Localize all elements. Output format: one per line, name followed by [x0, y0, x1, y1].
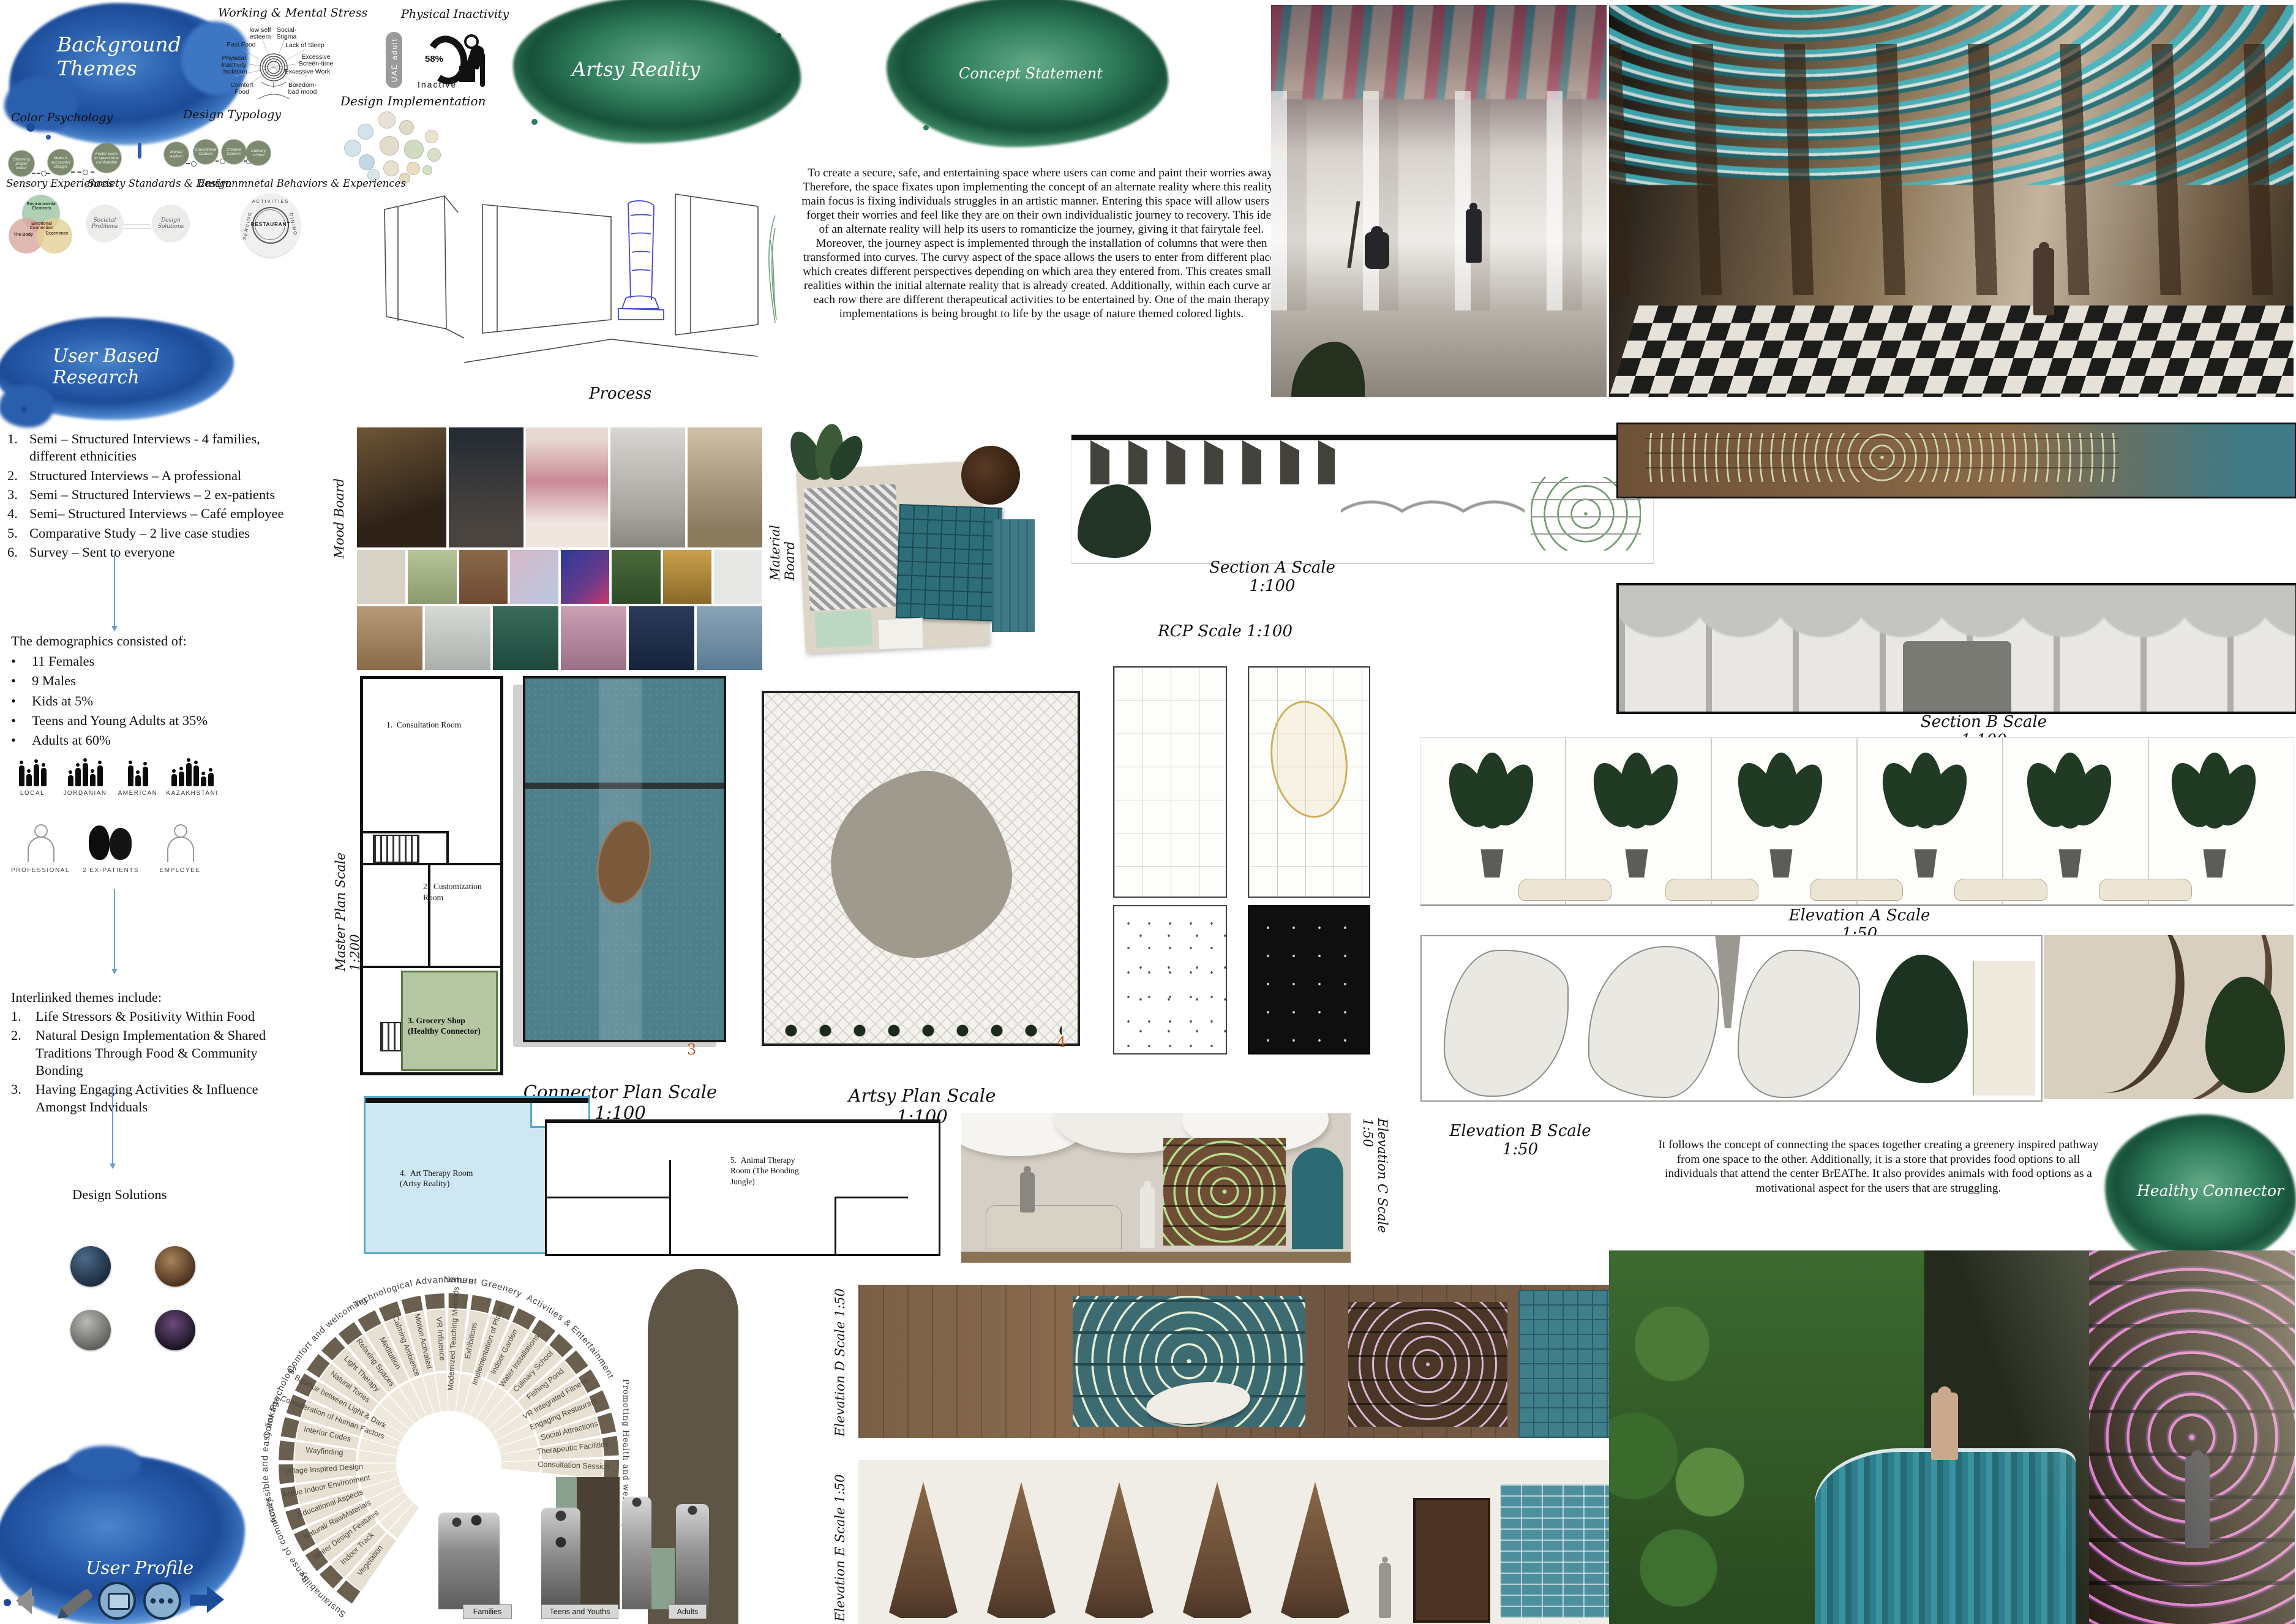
interlinked-number: 3.: [11, 1081, 36, 1116]
venn-top-label: Environmental Elements: [23, 202, 60, 211]
adult-man-photo: [622, 1497, 651, 1609]
step-circle: Make A successful Design: [48, 149, 73, 175]
color-psychology-title: Color Psychology: [11, 111, 113, 124]
animal-therapy-plan: 5. Animal Therapy Room (The Bonding Jung…: [545, 1119, 940, 1256]
user-research-title: User Based Research: [53, 345, 234, 388]
ethnic-group: JORDANIAN: [59, 758, 111, 797]
elevation-a-drawing: [1420, 738, 2294, 906]
step-circle: Mental asylum: [164, 142, 189, 167]
stress-factor-label: ComfortFood: [230, 81, 253, 96]
sensory-venn: Environmental Elements Emotional Connect…: [7, 192, 75, 263]
forward-arrow-icon: [207, 1586, 238, 1613]
role-icon: [23, 824, 58, 862]
demographic-item: •Kids at 5%: [11, 693, 225, 710]
families-photo: [438, 1513, 500, 1609]
interlinked-number: 2.: [11, 1027, 36, 1079]
demographic-item: •11 Females: [11, 653, 225, 670]
mood-tile: [425, 606, 490, 670]
ethnicity-row: LOCALJORDANIANAMERICANKAZAKHSTANI: [10, 758, 216, 807]
mood-board-label: Mood Board: [332, 467, 347, 558]
elevation-c-bottle-wall: [1163, 1138, 1286, 1246]
plant: [1878, 749, 1970, 878]
rcp-small-plan-white: [1113, 905, 1227, 1054]
interlinked-list: 1.Life Stressors & Positivity Within Foo…: [11, 1008, 302, 1116]
research-item: 2.Structured Interviews – A professional: [7, 467, 300, 484]
interlinked-title: Interlinked themes include:: [11, 990, 302, 1006]
mindmap-bubble: [407, 162, 420, 175]
material-mint-chip: [815, 610, 873, 648]
section-b-strip-2: [1616, 583, 2296, 714]
design-solution-photo-4: [155, 1310, 195, 1350]
material-fabric-swatch: [804, 484, 902, 611]
mood-tile: [629, 606, 694, 670]
ethnic-group: LOCAL: [10, 758, 55, 797]
render-art-gallery: [1271, 5, 1607, 397]
elevation-e-label: Elevation E Scale 1:50: [833, 1461, 847, 1622]
artsy-reality-title: Artsy Reality: [572, 58, 700, 81]
connector-knot: [83, 170, 88, 175]
interlinked-number: 1.: [11, 1008, 36, 1025]
mood-tile: [408, 550, 456, 604]
mood-tile: [612, 550, 660, 604]
mood-tile: [688, 427, 762, 547]
person-silhouette-icon: [41, 768, 47, 786]
research-item-number: 5.: [7, 525, 29, 542]
person-silhouette-icon: [208, 773, 214, 786]
mental-stress-title: Working & Mental Stress: [218, 6, 367, 20]
interlinked-item: 3.Having Engaging Activities & Influence…: [11, 1081, 302, 1116]
person-silhouette-icon: [186, 763, 192, 786]
design-solution-photo-2: [155, 1246, 195, 1287]
research-item-text: Semi– Structured Interviews – Café emplo…: [29, 505, 284, 522]
venn-right-label: Experience: [43, 231, 71, 236]
process-label: Process: [589, 385, 651, 403]
mood-tile: [357, 550, 405, 604]
room-consultation: 1. Consultation Room: [386, 720, 490, 731]
elevation-c-teal-arch: [1292, 1148, 1343, 1249]
stress-factor-label: low selfesteem: [249, 26, 271, 40]
interlinked-item: 1.Life Stressors & Positivity Within Foo…: [11, 1008, 302, 1025]
elevation-b-right-piece: [2044, 935, 2294, 1099]
room-animal-therapy: 5. Animal Therapy Room (The Bonding Jung…: [730, 1144, 847, 1187]
section-a-drawing: [1071, 435, 1653, 563]
teens-dark-block: [577, 1477, 620, 1609]
roles-row: PROFESSIONAL2 EX-PATIENTSEMPLOYEE: [10, 824, 212, 885]
societal-problems-node: Societal Problems: [86, 205, 124, 242]
artsy-reality-blob: Artsy Reality: [513, 0, 801, 143]
healthy-connector-paragraph: It follows the concept of connecting the…: [1653, 1138, 2104, 1195]
elevation-b-label: Elevation B Scale 1:50: [1431, 1122, 1609, 1159]
mindmap-bubble: [427, 148, 441, 162]
research-item-text: Comparative Study – 2 live case studies: [29, 525, 250, 542]
mood-tile: [357, 606, 422, 670]
elevation-d-shelf-unit: [1348, 1302, 1507, 1427]
elevation-e-teal-bricks: [1500, 1484, 1623, 1618]
connector-plan: [523, 676, 726, 1042]
demographic-text: Kids at 5%: [32, 693, 93, 710]
design-solution-photo-1: [70, 1246, 111, 1287]
healthy-connector-blob: Healthy Connector: [2105, 1115, 2296, 1269]
interlinked-text: Having Engaging Activities & Influence A…: [36, 1081, 302, 1116]
bullet: •: [11, 653, 32, 670]
research-item: 1.Semi – Structured Interviews - 4 famil…: [7, 430, 300, 465]
sofa: [2099, 879, 2192, 901]
mindmap-bubble: [399, 120, 414, 135]
silhouette-figures: [10, 758, 55, 786]
mood-tile: [510, 550, 558, 604]
bullet: •: [11, 672, 32, 690]
concept-blob: Concept Statement: [887, 0, 1168, 147]
section-a-label: Section A Scale 1:100: [1187, 558, 1358, 595]
mood-tile: [663, 550, 711, 604]
artsy-plan-blob: [814, 756, 1026, 973]
plant: [1734, 749, 1826, 878]
sofa: [1518, 879, 1611, 901]
role-group: 2 EX-PATIENTS: [77, 824, 144, 874]
interlinked-text: Life Stressors & Positivity Within Food: [36, 1008, 255, 1025]
inactive-caption: Inactive: [418, 80, 457, 89]
interlinked-item: 2.Natural Design Implementation & Shared…: [11, 1027, 302, 1079]
section-b-strip-1: [1616, 423, 2296, 498]
page-number-4: 4: [1057, 1034, 1066, 1051]
section-b-bottle-rows: [1645, 433, 2119, 482]
page-number-3: 3: [687, 1041, 696, 1058]
research-item-number: 1.: [7, 430, 29, 465]
elevation-e-render: [858, 1460, 1623, 1624]
mindmap-bubble: [359, 154, 375, 170]
material-plant: [786, 424, 866, 497]
sofa: [1954, 879, 2047, 901]
elevation-c-render: [961, 1113, 1351, 1263]
elevation-d-teal-tiles: [1518, 1290, 1623, 1438]
mindmap-bubble: [358, 124, 373, 140]
room-grocery: 3. Grocery Shop (Healthy Connector): [408, 1004, 491, 1037]
ethnic-label: KAZAKHSTANI: [164, 790, 220, 797]
master-plan: 1. Consultation Room 2. Customization Ro…: [360, 676, 503, 1075]
venn-center-label: Emotional Connection: [24, 222, 59, 230]
teens-photo: [541, 1508, 580, 1609]
mindmap-bubble: [344, 140, 361, 157]
mood-tile: [561, 606, 626, 670]
grocery-room: 3. Grocery Shop (Healthy Connector): [401, 971, 498, 1071]
person-silhouette-icon: [135, 775, 141, 786]
design-implementation-mindmap: [340, 108, 451, 180]
material-wood-circle: [961, 446, 1020, 505]
person-silhouette-icon: [83, 763, 88, 786]
room-art-therapy: 4. Art Therapy Room (Artsy Reality): [400, 1157, 516, 1189]
rcp-label: RCP Scale 1:100: [1155, 622, 1296, 641]
elevation-e-door: [1413, 1498, 1490, 1623]
inactive-percent: 58%: [425, 54, 443, 64]
person-silhouette-icon: [19, 765, 24, 786]
design-implementation-title: Design Implementation: [340, 94, 486, 108]
concept-title: Concept Statement: [959, 65, 1103, 82]
material-teal-wood-panel: [992, 519, 1035, 632]
mood-tile: [459, 550, 508, 604]
step-circle: Foster users to spend time comfortable: [92, 143, 121, 173]
mood-tile: [561, 550, 609, 604]
design-solutions-node: Design Solutions: [152, 205, 190, 242]
ethnic-label: LOCAL: [10, 790, 55, 797]
demographic-item: •Adults at 60%: [11, 732, 225, 749]
physical-inactivity-title: Physical Inactivity: [401, 7, 509, 21]
concept-paragraph: To create a secure, safe, and entertaini…: [801, 167, 1282, 321]
sofa: [1665, 879, 1758, 901]
person-silhouette-icon: [68, 775, 73, 786]
bar-label-teens: Teens and Youths: [541, 1604, 618, 1619]
badge-restaurant: RESTAURANT: [241, 222, 300, 227]
role-label: 2 EX-PATIENTS: [77, 867, 144, 874]
presentation-board: Background Themes Working & Mental Stres…: [0, 0, 2296, 1624]
plant: [1445, 749, 1537, 878]
research-item-number: 4.: [7, 505, 29, 522]
material-white-chip: [877, 618, 924, 650]
person-silhouette-icon: [171, 774, 177, 786]
mindmap-bubble: [422, 165, 432, 175]
healthy-connector-title: Healthy Connector: [2137, 1182, 2284, 1200]
adults-green-bar: [651, 1548, 675, 1609]
mood-tile: [714, 550, 762, 604]
rcp-plan-right: [1248, 666, 1370, 898]
demographic-text: 11 Females: [32, 653, 94, 670]
stairs-top: [373, 835, 419, 863]
demographic-item: •9 Males: [11, 672, 225, 690]
research-method-list: 1.Semi – Structured Interviews - 4 famil…: [7, 430, 300, 563]
demographics-title: The demographics consisted of:: [11, 633, 225, 649]
research-item-text: Semi – Structured Interviews - 4 familie…: [29, 430, 300, 465]
demographic-item: •Teens and Young Adults at 35%: [11, 712, 225, 729]
ethnic-group: AMERICAN: [115, 758, 160, 797]
role-icon: [85, 824, 137, 862]
elevation-b-tree: [1876, 955, 1968, 1083]
design-typology-steps: Mental asylumEducational CentersCreative…: [159, 126, 282, 175]
silhouette-figures: [59, 758, 111, 786]
person-silhouette-icon: [143, 767, 148, 786]
room-customization: 2. Customization Room: [423, 881, 494, 903]
step-circle: Educational Centers: [193, 140, 218, 164]
step-circle: Culinary school: [246, 141, 271, 165]
bullet: •: [11, 693, 32, 710]
demographics-list: •11 Females•9 Males•Kids at 5%•Teens and…: [11, 653, 225, 750]
research-item-number: 3.: [7, 486, 29, 503]
research-item-number: 6.: [7, 544, 29, 561]
ethnic-group: KAZAKHSTANI: [164, 758, 220, 797]
connector-knot: [191, 161, 197, 167]
mindmap-bubble: [380, 136, 399, 156]
demographics-block: The demographics consisted of: •11 Femal…: [11, 633, 225, 752]
research-item-number: 2.: [7, 467, 29, 484]
forward-arrow-stem: [190, 1595, 207, 1606]
stress-factor-label: Excessive Work: [285, 68, 331, 75]
role-group: EMPLOYEE: [149, 824, 211, 874]
ethnic-label: AMERICAN: [115, 790, 160, 797]
section-a-arches: [1341, 465, 1525, 558]
plant: [1589, 749, 1681, 878]
person-silhouette-icon: [90, 774, 96, 786]
back-arrow-stem: [18, 1596, 34, 1606]
venn-left-label: The Body: [10, 233, 37, 237]
material-board: [789, 427, 1046, 675]
rcp-yellow-ellipse: [1263, 696, 1355, 822]
person-silhouette-icon: [97, 765, 103, 786]
person-silhouette-icon: [34, 764, 39, 786]
mindmap-bubble: [383, 160, 399, 176]
rcp-small-plan-dark: [1248, 905, 1370, 1054]
artsy-plan: [762, 691, 1080, 1046]
person-silhouette-icon: [75, 768, 81, 786]
ethnic-label: JORDANIAN: [59, 790, 111, 797]
stress-factor-label: Social-Stigma: [277, 26, 297, 40]
elevation-b-drawing: [1420, 935, 2043, 1102]
bullet: •: [11, 732, 32, 749]
mindmap-bubble: [378, 111, 396, 129]
card-circle-icon: [98, 1582, 136, 1620]
mood-tile: [493, 606, 558, 670]
process-sketch: [366, 179, 792, 384]
person-silhouette-icon: [128, 765, 133, 786]
stress-factor-label: ExcessiveScreen-time: [299, 53, 334, 67]
research-item: 5.Comparative Study – 2 live case studie…: [7, 525, 300, 542]
master-plan-label: Master Plan Scale 1:200: [333, 812, 362, 971]
artsy-plan-plants: [774, 1021, 1062, 1040]
role-label: EMPLOYEE: [149, 867, 211, 874]
design-solution-photo-3: [70, 1310, 111, 1350]
interlinked-text: Natural Design Implementation & Shared T…: [36, 1027, 302, 1079]
design-typology-title: Design Typology: [183, 108, 281, 121]
dots-circle-icon: ●●●: [143, 1582, 181, 1620]
bar-label-adults: Adults: [669, 1604, 707, 1619]
stress-factor-label: Boredom-bad mood: [288, 81, 317, 96]
research-item-text: Structured Interviews – A professional: [29, 467, 241, 484]
person-silhouette-icon: [201, 776, 206, 786]
restaurant-badge: ACTIVITIES SERVING DINING RESTAURANT: [241, 194, 300, 257]
flow-arrow-2: [114, 889, 115, 972]
research-item: 6.Survey – Sent to everyone: [7, 544, 300, 561]
flow-arrow-3: [112, 1087, 113, 1167]
role-group: PROFESSIONAL: [10, 824, 71, 874]
design-solutions-label: Design Solutions: [72, 1187, 167, 1203]
research-item-text: Semi – Structured Interviews – 2 ex-pati…: [29, 486, 275, 503]
section-a-plant: [1078, 484, 1151, 558]
elevation-c-counter: [986, 1205, 1122, 1249]
mood-tile: [357, 427, 446, 547]
demographic-text: Adults at 60%: [32, 732, 111, 749]
section-b-counter: [1903, 641, 2011, 712]
elevation-c-label: Elevation C Scale 1:50: [1360, 1118, 1390, 1265]
uae-adult-pill: UAE adult: [386, 32, 402, 88]
section-a-cave-ceiling: [1071, 440, 1335, 484]
render-atrium: [1609, 5, 2294, 397]
background-themes-title: Background Themes: [57, 32, 245, 80]
research-item-text: Survey – Sent to everyone: [29, 544, 174, 561]
user-research-blob: User Based Research: [0, 317, 234, 420]
plant: [2023, 749, 2115, 878]
pencil-icon: [51, 1580, 97, 1624]
stress-factor-label: Lack of Sleep: [285, 42, 325, 49]
mood-tile: [610, 427, 685, 547]
sofa: [1810, 879, 1903, 901]
interlinked-block: Interlinked themes include: 1.Life Stres…: [11, 990, 302, 1118]
person-silhouette-icon: [193, 765, 199, 786]
step-circle: Creative Centers: [222, 140, 246, 164]
mood-board-collage: [357, 427, 762, 672]
person-silhouette-icon: [179, 772, 184, 786]
color-psychology-steps: Choosing proper colourMake A successful …: [0, 129, 141, 178]
role-icon: [162, 824, 198, 862]
mood-tile: [449, 427, 523, 547]
user-profile-title: User Profile: [86, 1557, 193, 1578]
flow-arrow-1: [114, 552, 115, 629]
role-label: PROFESSIONAL: [10, 867, 71, 874]
badge-activities: ACTIVITIES: [241, 198, 300, 204]
sedentary-person-icon: [458, 34, 492, 88]
elevation-d-label: Elevation D Scale 1:50: [833, 1284, 847, 1437]
research-item: 4.Semi– Structured Interviews – Café emp…: [7, 505, 300, 522]
material-teal-tile: [896, 504, 1002, 622]
mood-tile: [697, 606, 762, 670]
adult-woman-photo: [676, 1504, 709, 1609]
rcp-plan-left: [1113, 666, 1227, 898]
society-diagram: Societal Problems Design Solutions: [86, 202, 191, 251]
render-grocery-shop: [1609, 1250, 2295, 1624]
silhouette-figures: [115, 758, 160, 786]
connector-knot: [41, 171, 47, 176]
research-item: 3.Semi – Structured Interviews – 2 ex-pa…: [7, 486, 300, 503]
demographic-text: 9 Males: [32, 672, 76, 690]
demographic-text: Teens and Young Adults at 35%: [32, 712, 208, 729]
plant: [2167, 749, 2259, 878]
mindmap-bubble: [425, 130, 438, 143]
step-circle: Choosing proper colour: [9, 151, 34, 176]
silhouette-figures: [164, 758, 220, 786]
person-silhouette-icon: [26, 774, 32, 786]
bullet: •: [11, 712, 32, 729]
bar-label-families: Families: [463, 1604, 512, 1619]
mindmap-bubble: [404, 140, 424, 159]
elevation-d-render: [858, 1285, 1623, 1438]
mood-tile: [526, 427, 608, 547]
